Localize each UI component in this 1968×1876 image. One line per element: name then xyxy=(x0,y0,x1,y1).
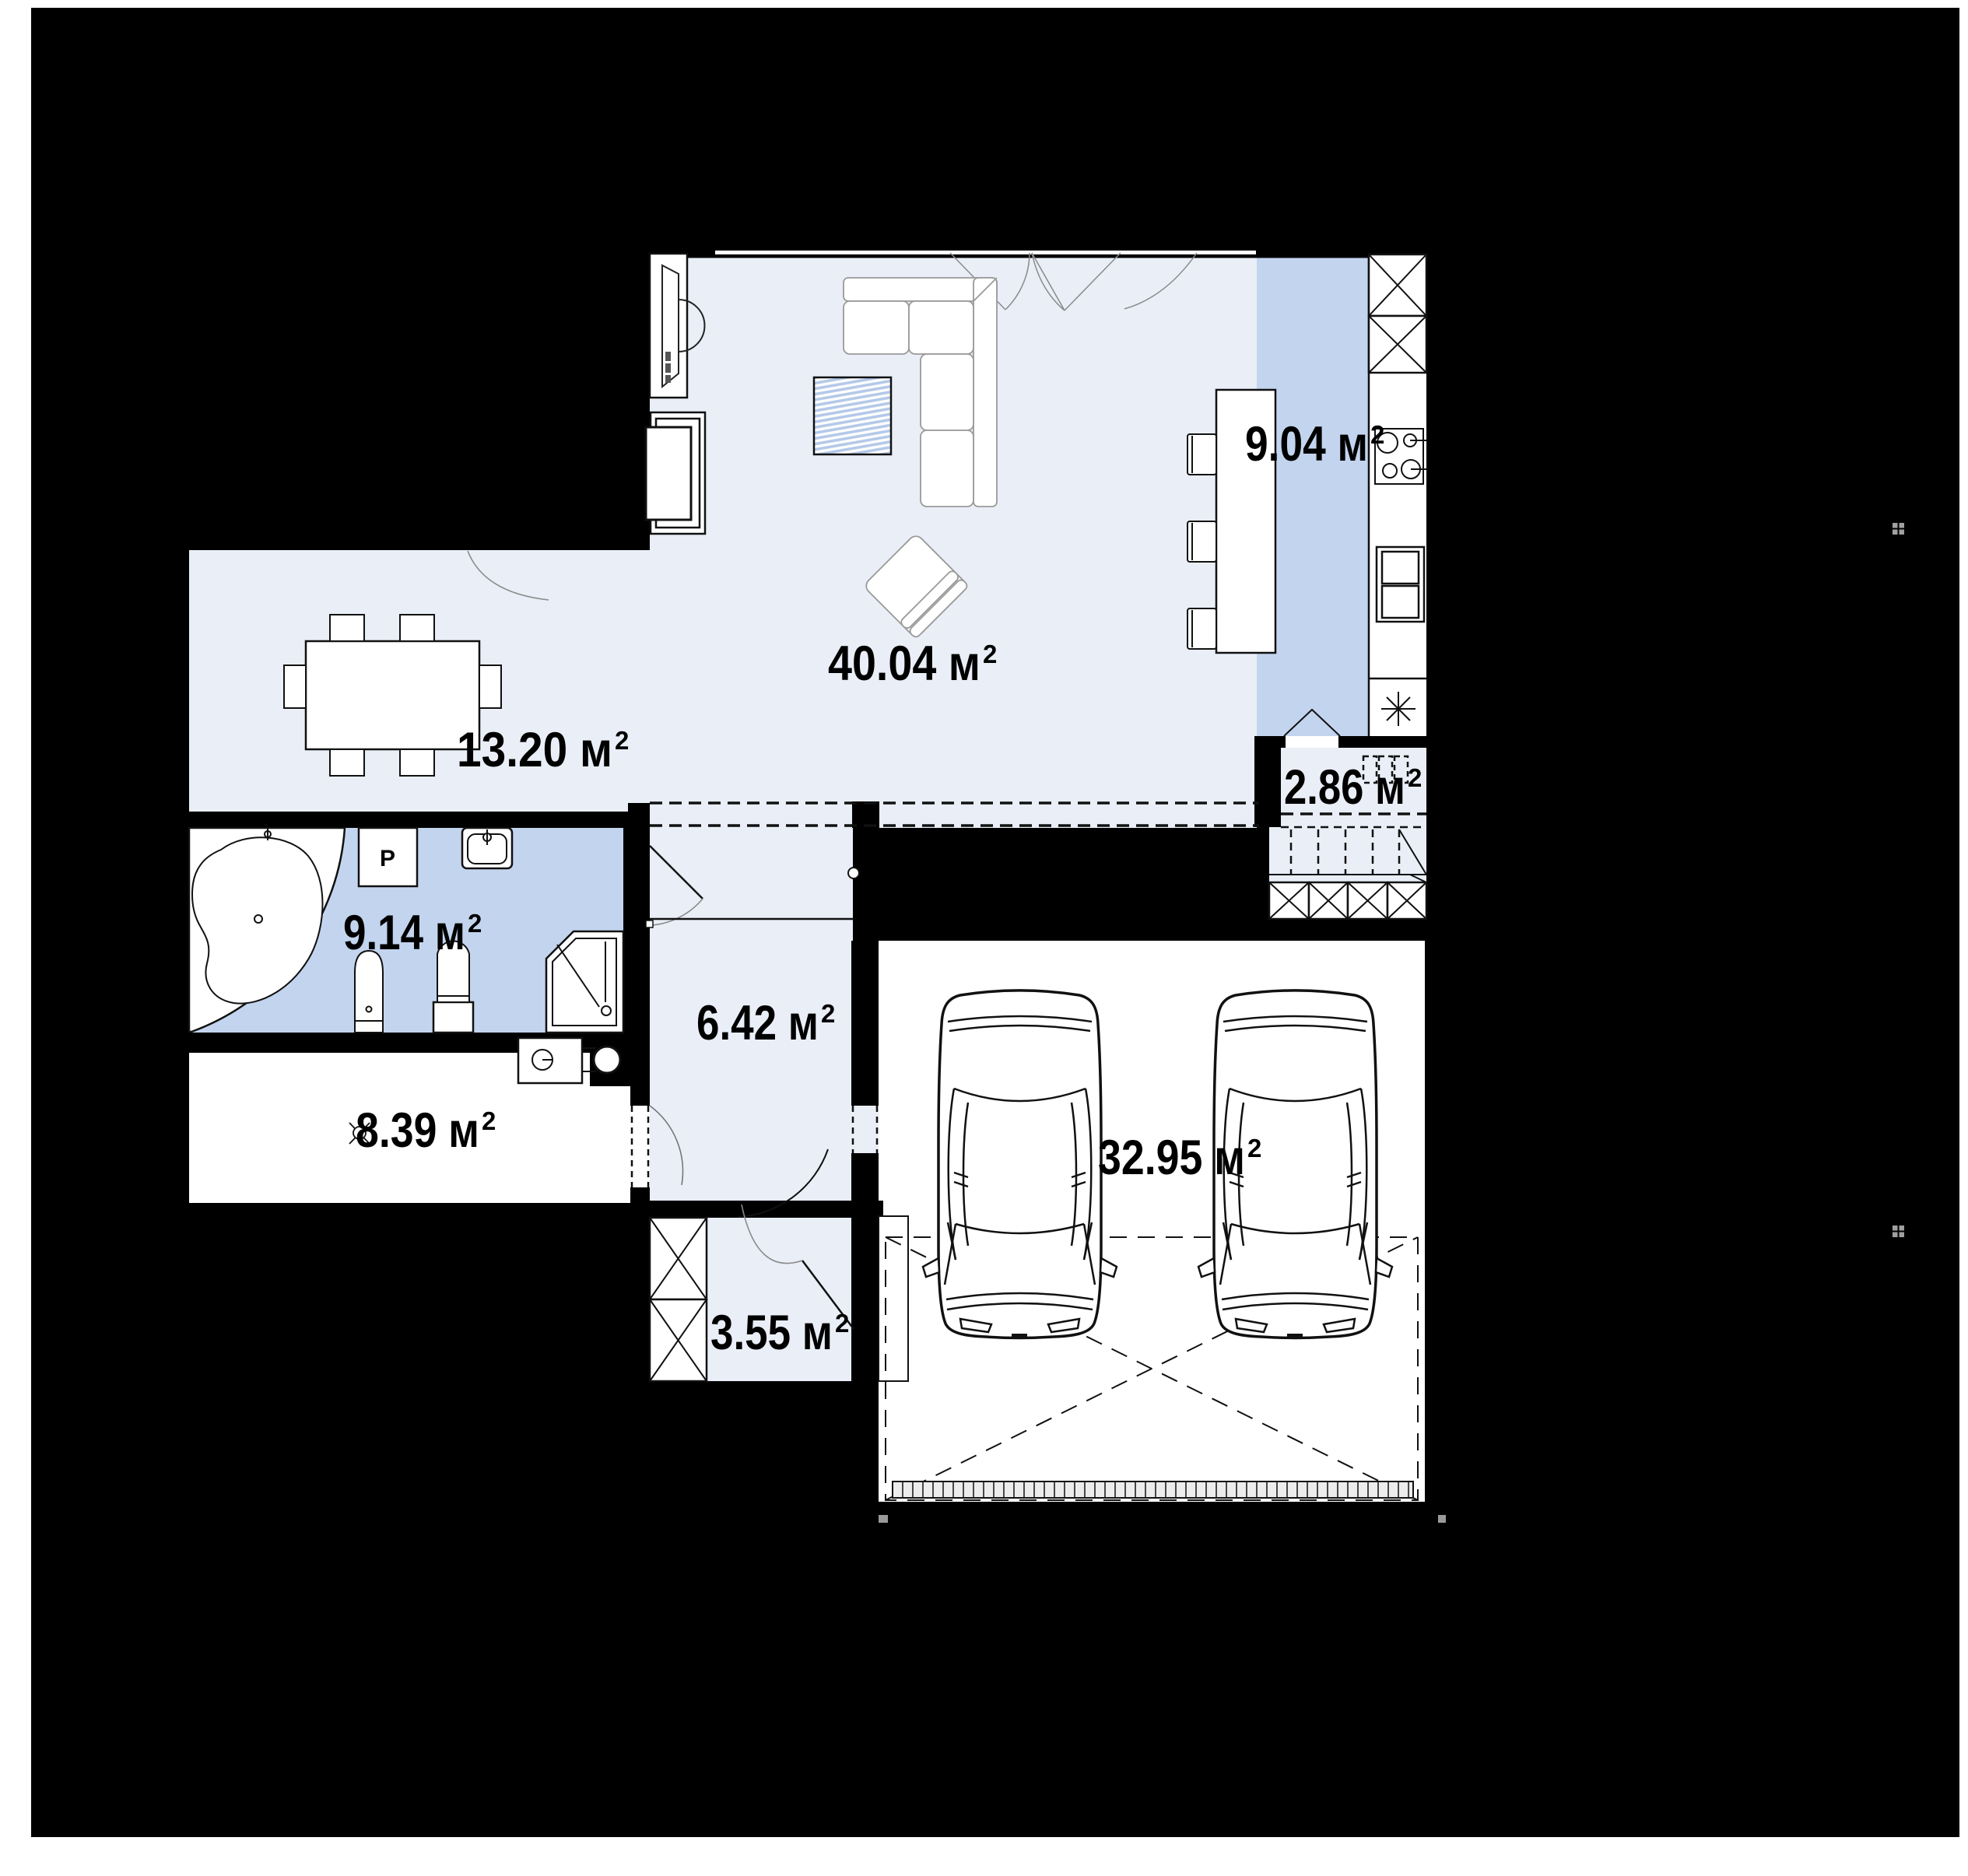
svg-text:2: 2 xyxy=(821,999,835,1028)
svg-text:2: 2 xyxy=(1370,420,1384,449)
svg-text:8.39 м: 8.39 м xyxy=(356,1103,479,1158)
svg-text:2: 2 xyxy=(482,1106,496,1135)
svg-text:9.04 м: 9.04 м xyxy=(1245,417,1368,472)
svg-text:2: 2 xyxy=(983,640,997,668)
svg-text:13.20 м: 13.20 м xyxy=(457,723,612,777)
svg-text:2: 2 xyxy=(615,726,629,755)
svg-text:2: 2 xyxy=(1408,763,1422,792)
svg-text:6.42 м: 6.42 м xyxy=(696,996,819,1050)
svg-text:9.14 м: 9.14 м xyxy=(343,906,465,960)
svg-text:3.55 м: 3.55 м xyxy=(710,1306,833,1360)
svg-text:40.04 м: 40.04 м xyxy=(828,636,980,691)
svg-text:2: 2 xyxy=(1247,1134,1261,1162)
svg-text:32.95 м: 32.95 м xyxy=(1098,1131,1245,1185)
svg-text:2: 2 xyxy=(468,909,482,938)
svg-text:2: 2 xyxy=(835,1309,849,1338)
svg-text:2.86 м: 2.86 м xyxy=(1284,760,1405,815)
svg-text:P: P xyxy=(380,846,395,871)
